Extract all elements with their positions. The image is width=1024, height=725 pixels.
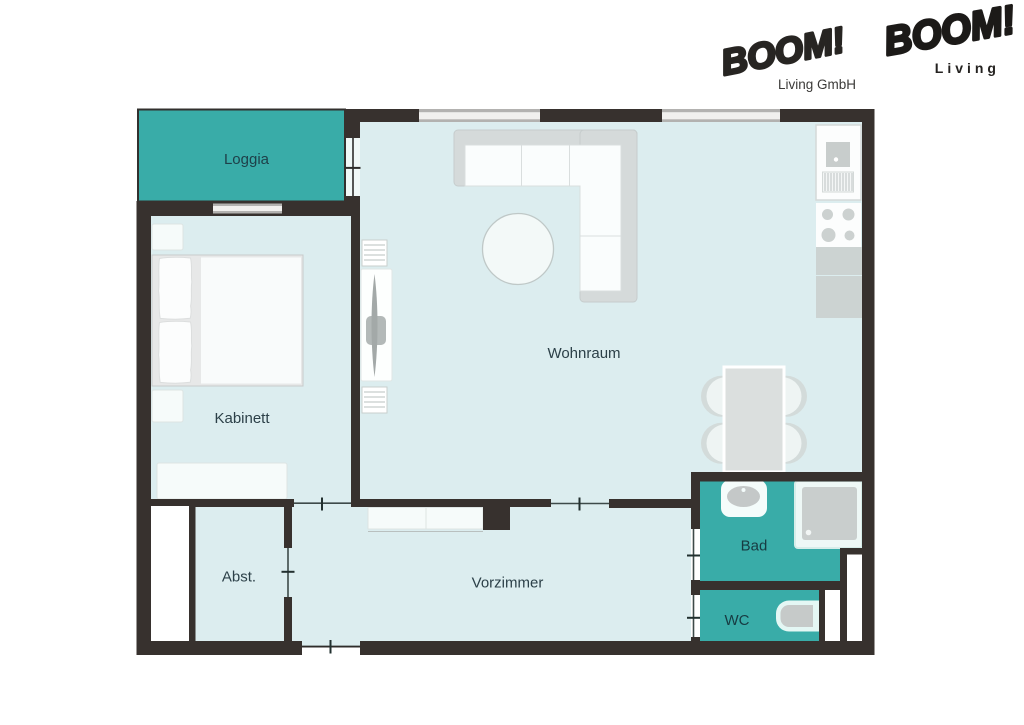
- svg-text:Kabinett: Kabinett: [214, 410, 270, 427]
- svg-text:Living: Living: [935, 60, 1000, 76]
- svg-text:Abst.: Abst.: [222, 569, 256, 586]
- svg-text:Wohnraum: Wohnraum: [547, 345, 620, 362]
- svg-text:Bad: Bad: [741, 538, 768, 555]
- svg-text:WC: WC: [725, 612, 750, 629]
- svg-text:Vorzimmer: Vorzimmer: [472, 575, 544, 592]
- svg-text:Loggia: Loggia: [224, 151, 270, 168]
- svg-text:Living GmbH: Living GmbH: [778, 77, 856, 92]
